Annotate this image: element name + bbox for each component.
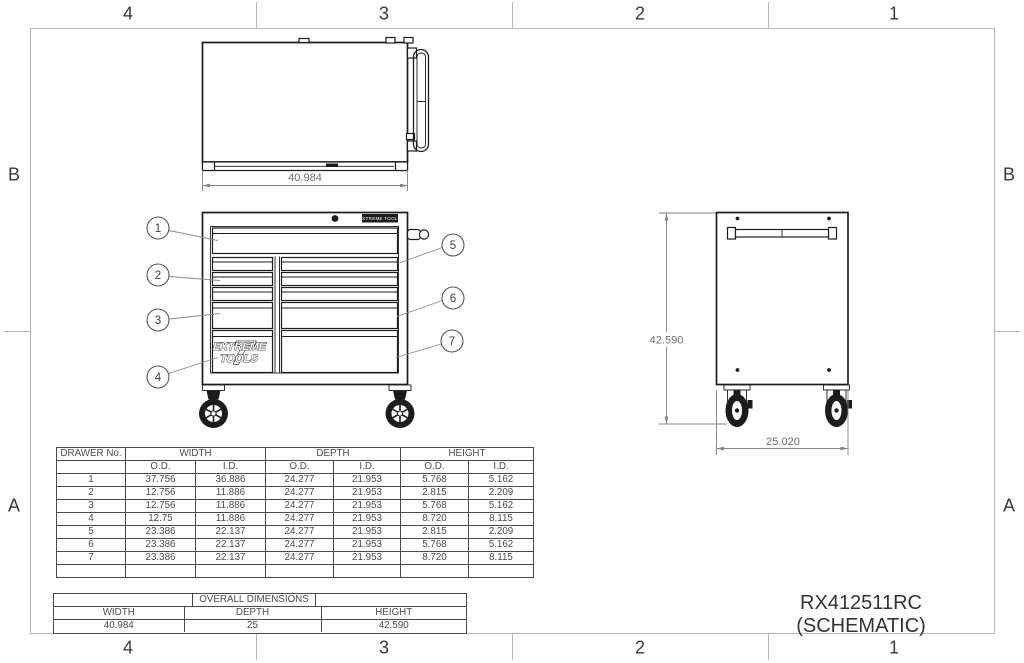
top-width-dim-text: 40.984 xyxy=(288,172,322,184)
table-cell: 24.277 xyxy=(266,513,334,526)
table-row: WIDTH DEPTH HEIGHT xyxy=(54,607,466,620)
table-cell xyxy=(266,565,334,578)
table-cell: 22.137 xyxy=(196,552,266,565)
table-row: 212.75611.88624.27721.9532.8152.209 xyxy=(57,487,534,500)
overall-dimensions-title: OVERALL DIMENSIONS xyxy=(192,594,316,606)
callout-number-6: 6 xyxy=(450,293,456,305)
table-cell: 2.815 xyxy=(401,487,469,500)
dimension-width: 40.984 xyxy=(203,170,408,191)
table-cell: 24.277 xyxy=(266,474,334,487)
table-cell xyxy=(334,565,401,578)
header-depth: DEPTH xyxy=(266,448,401,461)
screw-icon xyxy=(827,217,831,221)
callout-number-3: 3 xyxy=(155,315,161,327)
table-cell: 24.277 xyxy=(266,552,334,565)
table-cell: 5 xyxy=(57,526,126,539)
table-cell: 24.277 xyxy=(266,500,334,513)
table-cell: 22.137 xyxy=(196,539,266,552)
table-cell: 21.953 xyxy=(334,500,401,513)
table-cell: 21.953 xyxy=(334,474,401,487)
table-cell: 36.886 xyxy=(196,474,266,487)
screw-icon xyxy=(827,368,831,372)
table-cell: 5.768 xyxy=(401,500,469,513)
table-cell: 24.277 xyxy=(266,526,334,539)
table-cell: 3 xyxy=(57,500,126,513)
table-row: 723.38622.13724.27721.9538.7208.115 xyxy=(57,552,534,565)
table-cell: 24.277 xyxy=(266,539,334,552)
table-cell: 12.75 xyxy=(126,513,196,526)
table-cell: 5.162 xyxy=(469,474,534,487)
screw-icon xyxy=(736,217,740,221)
table-cell: 8.115 xyxy=(469,552,534,565)
side-handle xyxy=(728,228,837,240)
drawer-dimensions-table: DRAWER No. WIDTH DEPTH HEIGHT O.D. I.D. … xyxy=(56,447,534,578)
header-id: I.D. xyxy=(334,461,401,474)
callout-number-4: 4 xyxy=(155,372,162,384)
table-cell: 11.886 xyxy=(196,500,266,513)
header-od: O.D. xyxy=(401,461,469,474)
side-handle-top-view xyxy=(407,48,429,152)
table-cell: 8.115 xyxy=(469,513,534,526)
screw-icon xyxy=(736,368,740,372)
table-row: 412.7511.88624.27721.9538.7208.115 xyxy=(57,513,534,526)
drawer-1 xyxy=(213,228,398,254)
table-cell: 5.162 xyxy=(469,539,534,552)
header-height: HEIGHT xyxy=(401,448,534,461)
table-header-row-subs: O.D. I.D. O.D. I.D. O.D. I.D. xyxy=(57,461,534,474)
logo-line1: EXTREME xyxy=(212,341,268,353)
table-cell: 7 xyxy=(57,552,126,565)
table-cell xyxy=(401,565,469,578)
side-handle-stub xyxy=(408,230,429,240)
table-cell: 4 xyxy=(57,513,126,526)
table-cell: 8.720 xyxy=(401,513,469,526)
table-cell: 5.768 xyxy=(401,539,469,552)
table-cell: 2.209 xyxy=(469,487,534,500)
callout-number-2: 2 xyxy=(155,270,161,282)
overall-dimensions-table: OVERALL DIMENSIONS WIDTH DEPTH HEIGHT 40… xyxy=(53,593,467,634)
table-cell: 23.386 xyxy=(126,552,196,565)
table-cell: 21.953 xyxy=(334,487,401,500)
table-cell xyxy=(196,565,266,578)
side-depth-dim-text: 25.020 xyxy=(766,436,800,448)
table-cell: 24.277 xyxy=(266,487,334,500)
table-cell: 2 xyxy=(57,487,126,500)
callout-number-5: 5 xyxy=(450,240,456,252)
header-id: I.D. xyxy=(196,461,266,474)
side-caster-front xyxy=(724,385,753,427)
overall-value-depth: 25 xyxy=(184,620,321,633)
table-cell: 11.886 xyxy=(196,487,266,500)
table-row: 312.75611.88624.27721.9535.7685.162 xyxy=(57,500,534,513)
header-od: O.D. xyxy=(266,461,334,474)
side-height-dim-text: 42.590 xyxy=(650,335,684,347)
lock-icon xyxy=(332,215,339,222)
table-cell: 21.953 xyxy=(334,539,401,552)
table-cell: 21.953 xyxy=(334,526,401,539)
header-width: WIDTH xyxy=(126,448,266,461)
callout-number-7: 7 xyxy=(449,336,455,348)
table-row: 523.38622.13724.27721.9532.8152.209 xyxy=(57,526,534,539)
table-cell: 8.720 xyxy=(401,552,469,565)
table-cell: 37.756 xyxy=(126,474,196,487)
table-row xyxy=(57,565,534,578)
overall-value-height: 42.590 xyxy=(321,620,466,633)
table-cell: 5.768 xyxy=(401,474,469,487)
front-view: EXTREME TOOLS xyxy=(199,213,429,429)
header-od: O.D. xyxy=(126,461,196,474)
header-id: I.D. xyxy=(469,461,534,474)
table-empty-row xyxy=(57,565,534,578)
table-cell: 23.386 xyxy=(126,539,196,552)
table-cell: 2.815 xyxy=(401,526,469,539)
table-cell: 12.756 xyxy=(126,500,196,513)
dimension-height: 42.590 xyxy=(647,213,727,424)
table-cell: 6 xyxy=(57,539,126,552)
table-cell: 5.162 xyxy=(469,500,534,513)
front-caster-right xyxy=(386,385,415,428)
overall-header-width: WIDTH xyxy=(54,607,184,620)
table-cell: 2.209 xyxy=(469,526,534,539)
overall-header-height: HEIGHT xyxy=(321,607,466,620)
table-cell: 11.886 xyxy=(196,513,266,526)
table-header-row-groups: DRAWER No. WIDTH DEPTH HEIGHT xyxy=(57,448,534,461)
brand-badge: EXTREME TOOLS xyxy=(359,214,401,223)
table-cell xyxy=(469,565,534,578)
table-cell: 21.953 xyxy=(334,513,401,526)
top-view: 40.984 xyxy=(203,38,429,192)
right-drawer-bank xyxy=(282,258,398,373)
callout-number-1: 1 xyxy=(155,223,161,235)
drawing-sheet: 4 3 2 1 4 3 2 1 B A B A xyxy=(0,0,1024,663)
front-caster-left xyxy=(199,385,228,428)
header-drawer-no: DRAWER No. xyxy=(57,448,126,461)
table-row: 623.38622.13724.27721.9535.7685.162 xyxy=(57,539,534,552)
table-row: 137.75636.88624.27721.9535.7685.162 xyxy=(57,474,534,487)
table-body: 137.75636.88624.27721.9535.7685.162212.7… xyxy=(57,474,534,565)
logo-line2: TOOLS xyxy=(219,353,260,365)
table-row: 40.984 25 42.590 xyxy=(54,620,466,633)
table-cell: 22.137 xyxy=(196,526,266,539)
overall-value-width: 40.984 xyxy=(54,620,184,633)
overall-dimensions-grid: WIDTH DEPTH HEIGHT 40.984 25 42.590 xyxy=(54,606,466,632)
table-cell: 1 xyxy=(57,474,126,487)
brand-badge-text: EXTREME TOOLS xyxy=(359,216,401,221)
table-cell: 21.953 xyxy=(334,552,401,565)
table-cell xyxy=(57,565,126,578)
sheet-title: RX412511RC (SCHEMATIC) xyxy=(736,592,986,638)
table-cell xyxy=(126,565,196,578)
table-cell: 23.386 xyxy=(126,526,196,539)
overall-header-depth: DEPTH xyxy=(184,607,321,620)
side-view: 42.590 25.020 xyxy=(647,213,852,456)
table-header: DRAWER No. WIDTH DEPTH HEIGHT O.D. I.D. … xyxy=(57,448,534,474)
header-blank xyxy=(57,461,126,474)
table-cell: 12.756 xyxy=(126,487,196,500)
